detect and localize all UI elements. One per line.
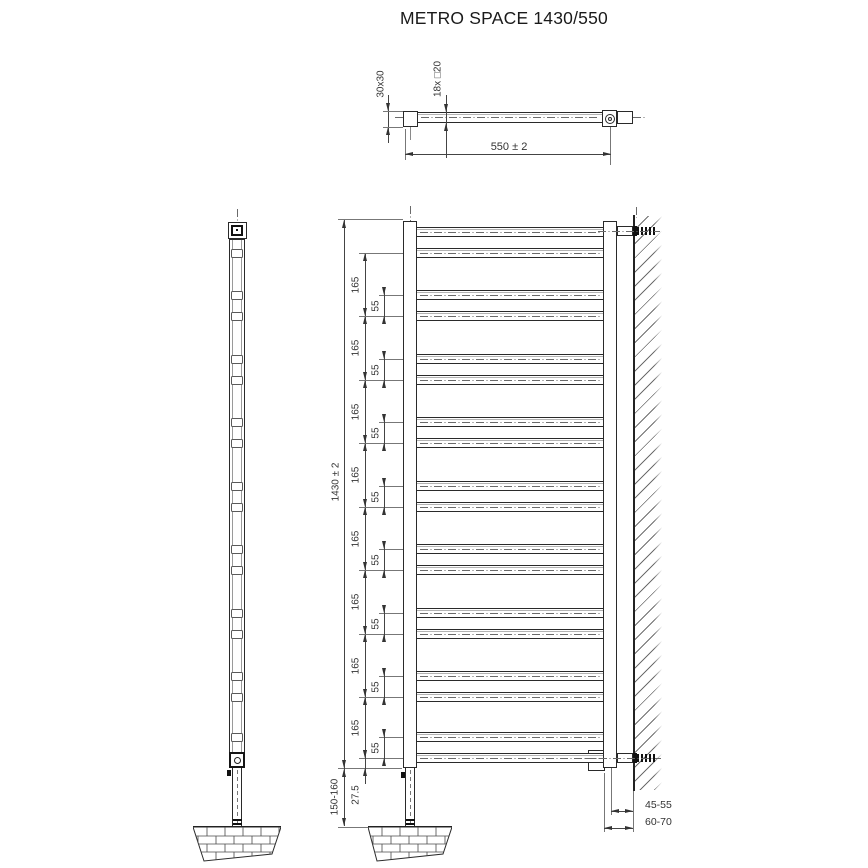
rung-centerline [420,697,600,698]
rung-inner-line [417,419,603,420]
dimension-arrow [382,758,386,766]
dimension-arrow [382,605,386,613]
dimension-arrow [363,380,367,388]
dimension-arrow [342,818,346,826]
spacing-small-label: 55 [371,491,382,502]
floor-clearance-label: 150-160 [330,779,341,816]
bottom-offset-label: 27.5 [351,785,362,804]
wall-distance-upper-label: 45-55 [645,799,672,811]
extension-line [379,295,403,296]
dimension-arrow [363,372,367,380]
dimension-arrow [363,507,367,515]
wall-section-hatch [635,216,662,790]
extension-line [383,127,403,128]
spacing-large-label: 165 [351,467,362,484]
dimension-arrow [342,220,346,228]
dimension-arrow [382,316,386,324]
dimension-arrow [382,380,386,388]
dimension-arrow [363,689,367,697]
cap-size-label: 30x30 [376,70,387,97]
dimension-arrow [382,668,386,676]
rung-inner-line [417,356,603,357]
dimension-arrow [611,809,619,813]
dimension-arrow [363,634,367,642]
rung-centerline [420,295,600,296]
rung-inner-line [417,734,603,735]
top-view-tube-centerline [421,117,599,118]
dimension-arrow [386,103,390,111]
extension-line [379,359,403,360]
rung-section-square [231,291,243,300]
width-label: 550 ± 2 [491,141,528,153]
rung-centerline [420,443,600,444]
rung-centerline [420,634,600,635]
rung-inner-line [417,673,603,674]
side-view-top-centerline [237,209,238,222]
dimension-arrow [363,443,367,451]
top-view-left-cap-projection-line [410,127,411,140]
side-view-plug-dot [236,229,238,231]
dimension-arrow [382,507,386,515]
rung-section-square [231,355,243,364]
rung-inner-line [417,292,603,293]
spacing-small-label: 55 [371,300,382,311]
extension-line [383,111,403,112]
spacing-small-label: 55 [371,618,382,629]
rung-section-square [231,376,243,385]
rung-inner-line [417,229,603,230]
rung-section-square [231,439,243,448]
spacing-small-label: 55 [371,554,382,565]
side-view-masonry-base [193,827,281,863]
extension-line [379,549,403,550]
technical-drawing-canvas: METRO SPACE 1430/550 30x3018x □20550 ± 2… [0,0,868,868]
spacing-large-label: 165 [351,719,362,736]
rung-section-square [231,566,243,575]
rung-section-square [231,672,243,681]
spacing-large-label: 165 [351,657,362,674]
rung-centerline [420,758,600,759]
rung-centerline [420,486,600,487]
dimension-arrow [625,809,633,813]
side-view-valve-circle [234,757,241,764]
dimension-arrow [405,152,413,156]
dimension-arrow [382,541,386,549]
dimension-arrow [363,499,367,507]
rung-centerline [420,380,600,381]
extension-line [379,486,403,487]
height-label: 1430 ± 2 [331,463,342,502]
dimension-arrow [363,562,367,570]
rung-inner-line [417,546,603,547]
dimension-arrow [363,768,367,776]
rung-centerline [420,549,600,550]
rung-spec-label: 18x □20 [433,61,444,97]
spacing-large-label: 165 [351,403,362,420]
spacing-large-label: 165 [351,530,362,547]
dimension-arrow [363,570,367,578]
rung-section-square [231,693,243,702]
rung-centerline [420,422,600,423]
dimension-arrow [382,414,386,422]
extension-line [610,127,611,165]
extension-line [379,422,403,423]
rung-section-square [231,418,243,427]
rung-inner-line [417,694,603,695]
rung-inner-line [417,440,603,441]
dimension-arrow [382,287,386,295]
spacing-small-label: 55 [371,742,382,753]
rung-section-square [231,482,243,491]
spacing-small-label: 55 [371,681,382,692]
rung-section-square [231,545,243,554]
dimension-arrow [382,443,386,451]
rung-inner-line [417,313,603,314]
front-view-pipe-centerline [410,770,411,825]
front-view-right-column [603,221,617,768]
dimension-arrow [363,697,367,705]
dimension-arrow [363,750,367,758]
rung-section-square [231,609,243,618]
dimension-arrow [382,351,386,359]
side-view-pipe-centerline [237,770,238,825]
rung-centerline [420,737,600,738]
dimension-arrow [444,123,448,131]
extension-line [379,613,403,614]
extension-line [633,791,634,832]
spacing-small-label: 55 [371,427,382,438]
extension-line [604,773,605,832]
rung-centerline [420,613,600,614]
dimension-arrow [603,152,611,156]
dimension-arrow [382,697,386,705]
rung-centerline [420,676,600,677]
rung-inner-line [417,504,603,505]
front-view-masonry-base [368,827,452,863]
rung-inner-line [417,755,603,756]
spacing-large-label: 165 [351,594,362,611]
drawing-title: METRO SPACE 1430/550 [400,8,608,29]
dimension-arrow [386,127,390,135]
front-view-left-centerline [410,206,411,221]
front-view-set-screw [401,772,405,778]
wall-distance-lower-label: 60-70 [645,816,672,828]
side-view-set-screw [227,770,231,776]
rung-centerline [420,253,600,254]
dimension-arrow [382,478,386,486]
rung-centerline [420,316,600,317]
dimension-arrow [382,570,386,578]
rung-inner-line [417,250,603,251]
rung-centerline [420,232,600,233]
rung-section-square [231,249,243,258]
extension-line [379,737,403,738]
dimension-arrow [342,760,346,768]
rung-inner-line [417,377,603,378]
rung-section-square [231,503,243,512]
dimension-arrow [444,104,448,112]
spacing-small-label: 55 [371,364,382,375]
extension-line [338,219,403,220]
rung-inner-line [417,483,603,484]
dimension-arrow [363,308,367,316]
top-view-wall-bracket [617,111,633,124]
top-screw-centerline [598,231,660,232]
rung-section-square [231,312,243,321]
dimension-arrow [604,826,612,830]
rung-centerline [420,359,600,360]
height-dim-line [344,220,345,768]
rung-inner-line [417,631,603,632]
dimension-arrow [382,729,386,737]
rung-inner-line [417,610,603,611]
rung-section-square [231,733,243,742]
rung-section-square [231,630,243,639]
dimension-arrow [625,826,633,830]
front-view-left-column [403,221,417,768]
bottom-screw-centerline [585,758,661,759]
extension-line [379,676,403,677]
rung-inner-line [417,567,603,568]
dimension-arrow [363,435,367,443]
width-dim-line [405,154,611,155]
dimension-arrow [342,769,346,777]
top-view-left-cap [403,111,418,127]
extension-line [338,827,368,828]
dimension-arrow [363,253,367,261]
spacing-large-label: 165 [351,276,362,293]
dimension-arrow [363,316,367,324]
spacing-large-label: 165 [351,340,362,357]
rung-centerline [420,570,600,571]
dimension-arrow [363,626,367,634]
rung-centerline [420,507,600,508]
top-view-vent-circle-inner [608,117,612,121]
dimension-arrow [382,634,386,642]
